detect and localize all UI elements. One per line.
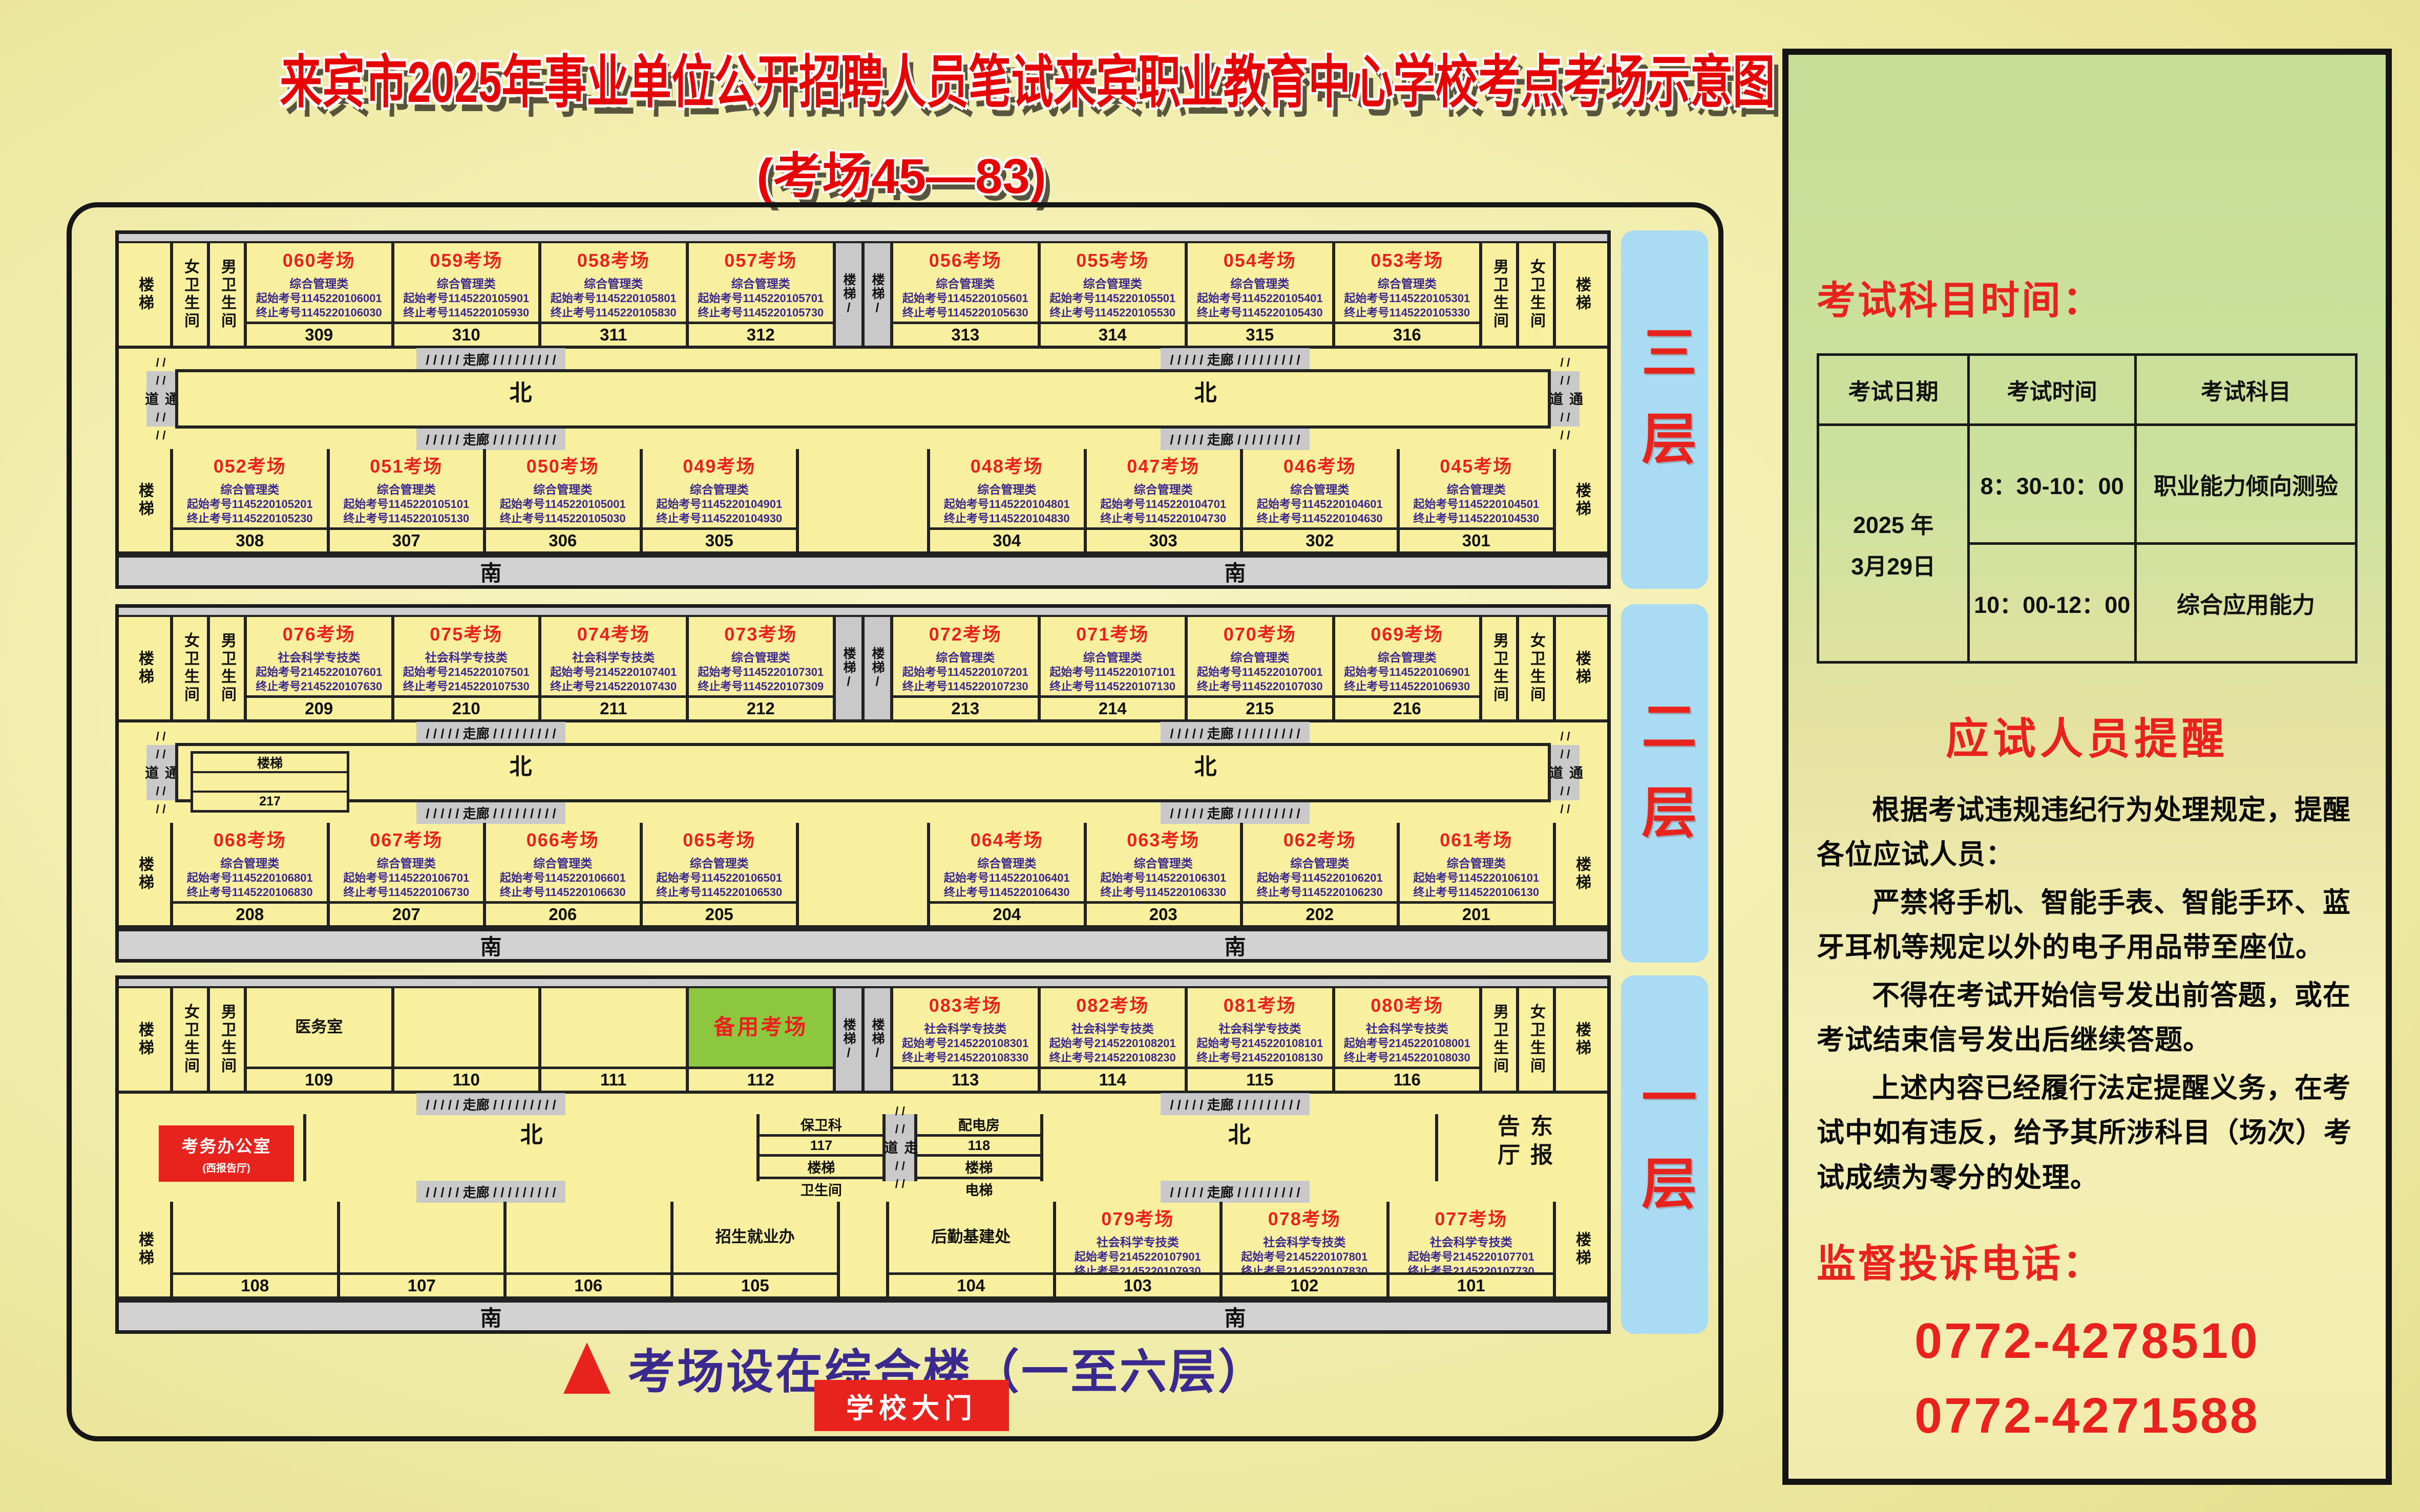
room-number: 307	[330, 530, 483, 551]
room-number: 308	[173, 530, 327, 551]
exam-room-title: 056考场	[893, 246, 1038, 272]
slash-mark: / /	[895, 1104, 905, 1118]
room-number: 115	[1188, 1069, 1332, 1091]
room-109: 医务室109	[247, 988, 394, 1091]
passage-strip: / // /通道/ // /	[146, 745, 175, 800]
exam-start-number: 起始考号1145220106001	[247, 291, 391, 306]
exam-office-room: 考务办公室(西报告厅)	[119, 1114, 306, 1181]
exam-venue-poster: 来宾市2025年事业单位公开招聘人员笔试来宾职业教育中心学校考点考场示意图 (考…	[0, 0, 2420, 1512]
room-number: 310	[394, 324, 539, 346]
stairwell: 楼梯	[119, 617, 173, 719]
floor-plan: 楼梯女卫生间男卫生间060考场综合管理类起始考号1145220106001终止考…	[115, 230, 1611, 589]
stairwell: 楼梯	[1556, 988, 1607, 1091]
notice-paragraph-1: 根据考试违规违纪行为处理规定，提醒各位应试人员：	[1817, 788, 2358, 878]
empty-room	[840, 1202, 889, 1296]
room-number: 210	[394, 698, 539, 719]
female-restroom-label: 女卫生间	[1525, 1004, 1547, 1075]
empty-room	[799, 449, 930, 551]
exam-end-number: 终止考号1145220104730	[1087, 512, 1240, 526]
slash-mark: / /	[1560, 730, 1570, 743]
room-number: 211	[541, 698, 686, 719]
exam-room-title: 083考场	[893, 991, 1038, 1017]
exam-office-box: 考务办公室(西报告厅)	[159, 1125, 294, 1182]
exam-end-number: 终止考号1145220105530	[1041, 306, 1185, 320]
exam-room-title: 061考场	[1400, 825, 1553, 852]
exam-room-114: 082考场社会科学专技类起始考号2145220108201终止考号2145220…	[1041, 988, 1188, 1091]
exam-room-info: 079考场社会科学专技类起始考号2145220107901终止考号2145220…	[1056, 1202, 1220, 1275]
exam-end-number: 终止考号1145220105330	[1335, 306, 1480, 320]
room-105: 招生就业办105	[674, 1202, 840, 1296]
slash-mark: / /	[156, 730, 165, 743]
exam-room-info: 066考场综合管理类起始考号1145220106601终止考号114522010…	[486, 823, 640, 904]
exam-room-title: 057考场	[689, 246, 833, 272]
exam-room-info: 076考场社会科学专技类起始考号2145220107601终止考号2145220…	[247, 617, 391, 698]
exam-office-title: 考务办公室	[162, 1133, 291, 1157]
exam-end-number: 终止考号1145220107130	[1041, 679, 1185, 694]
exam-category: 社会科学专技类	[541, 648, 686, 665]
room-number: 315	[1188, 324, 1332, 346]
exam-end-number: 终止考号1145220106930	[1335, 679, 1480, 694]
exam-end-number: 终止考号1145220106530	[643, 885, 796, 900]
exam-category: 综合管理类	[893, 274, 1038, 291]
exam-start-number: 起始考号1145220107101	[1041, 665, 1185, 679]
exam-start-number: 起始考号2145220108101	[1188, 1036, 1332, 1051]
exam-start-number: 起始考号1145220107301	[689, 665, 833, 679]
room-number: 314	[1041, 324, 1185, 346]
north-label: 北	[1194, 748, 1217, 781]
exam-room-210: 075考场社会科学专技类起始考号2145220107501终止考号2145220…	[394, 617, 542, 719]
stairwell-strip: 楼梯/	[865, 617, 893, 719]
floor-2-plan: 楼梯女卫生间男卫生间076考场社会科学专技类起始考号2145220107601终…	[115, 604, 1611, 963]
exam-room-313: 056考场综合管理类起始考号1145220105601终止考号114522010…	[893, 243, 1041, 346]
exam-room-info: 069考场综合管理类起始考号1145220106901终止考号114522010…	[1335, 617, 1480, 698]
exam-end-number: 终止考号1145220105430	[1188, 306, 1332, 320]
female-restroom-label: 女卫生间	[179, 632, 201, 704]
exam-category: 综合管理类	[1243, 480, 1397, 497]
central-hall: 北北楼梯217	[175, 743, 1551, 802]
exam-end-number: 终止考号1145220106430	[930, 885, 1084, 900]
male-restroom: 男卫生间	[1482, 988, 1519, 1091]
north-label: 北	[510, 374, 532, 407]
exam-room-302: 046考场综合管理类起始考号1145220104601终止考号114522010…	[1243, 449, 1400, 551]
exam-start-number: 起始考号1145220105501	[1041, 291, 1185, 306]
stairwell-strip: 楼梯/	[836, 988, 865, 1091]
exam-category: 综合管理类	[689, 274, 833, 291]
exam-room-205: 065考场综合管理类起始考号1145220106501终止考号114522010…	[643, 823, 799, 925]
slash-mark: / /	[156, 374, 165, 388]
exam-room-title: 078考场	[1223, 1204, 1386, 1231]
exam-category: 综合管理类	[930, 854, 1084, 871]
exam-room-206: 066考场综合管理类起始考号1145220106601终止考号114522010…	[486, 823, 643, 925]
male-restroom: 男卫生间	[1482, 617, 1519, 719]
building-edge	[119, 608, 1607, 617]
exam-start-number: 起始考号1145220106101	[1400, 871, 1553, 885]
exam-time-2: 10：00-12：00	[1969, 544, 2136, 663]
exam-start-number: 起始考号1145220106401	[930, 871, 1084, 885]
exam-end-number: 终止考号1145220107030	[1188, 679, 1332, 694]
exam-start-number: 起始考号1145220105201	[173, 497, 327, 512]
exam-room-title: 048考场	[930, 452, 1084, 478]
floor-1-label: 一层	[1625, 1069, 1704, 1241]
exam-room-info: 080考场社会科学专技类起始考号2145220108001终止考号2145220…	[1335, 988, 1480, 1069]
stairwell-strip: 楼梯/	[865, 988, 893, 1091]
exam-start-number: 起始考号2145220108201	[1041, 1036, 1185, 1051]
stairwell: 楼梯	[917, 1157, 1040, 1179]
exam-end-number: 终止考号1145220105630	[893, 306, 1038, 320]
building-edge	[119, 979, 1607, 988]
notice-paragraph-4: 上述内容已经履行法定提醒义务，在考试中如有违反，给予其所涉科目（场次）考试成绩为…	[1817, 1066, 2358, 1200]
exam-category: 综合管理类	[1335, 274, 1480, 291]
stairwell-strip: 楼梯/	[836, 617, 865, 719]
exam-category: 综合管理类	[486, 480, 640, 497]
school-gate-badge: 学校大门	[814, 1380, 1009, 1431]
exam-room-title: 081考场	[1188, 991, 1332, 1017]
exam-end-number: 终止考号1145220106130	[1400, 885, 1553, 900]
exam-room-title: 064考场	[930, 825, 1084, 852]
exam-start-number: 起始考号1145220106501	[643, 871, 796, 885]
east-lecture-hall: 东报告厅	[1438, 1114, 1607, 1181]
exam-room-info: 082考场社会科学专技类起始考号2145220108201终止考号2145220…	[1041, 988, 1185, 1069]
exam-date-year: 2025 年	[1820, 506, 1967, 540]
exam-room-info: 060考场综合管理类起始考号1145220106001终止考号114522010…	[247, 243, 391, 324]
exam-room-title: 045考场	[1400, 452, 1553, 478]
wall-spacer	[1580, 369, 1607, 429]
exam-category: 综合管理类	[1400, 854, 1553, 871]
room-number: 201	[1400, 904, 1553, 925]
stairwell-strip: 楼梯/	[865, 243, 893, 346]
exam-room-215: 070考场综合管理类起始考号1145220107001终止考号114522010…	[1188, 617, 1335, 719]
exam-room-info: 072考场综合管理类起始考号1145220107201终止考号114522010…	[893, 617, 1038, 698]
east-lecture-hall-label: 东报告厅	[1490, 1114, 1555, 1181]
room-number: 316	[1335, 324, 1480, 346]
exam-room-214: 071考场综合管理类起始考号1145220107101终止考号114522010…	[1041, 617, 1188, 719]
floor-3-badge: 三层	[1621, 230, 1708, 589]
exam-category: 社会科学专技类	[247, 648, 391, 665]
header-exam-date: 考试日期	[1818, 355, 1969, 425]
schedule-row-1: 2025 年 3月29日 8：30-10：00 职业能力倾向测验	[1818, 425, 2356, 544]
walkway-strip-label: 走道	[880, 1140, 920, 1155]
female-restroom-label: 女卫生间	[179, 1004, 201, 1075]
exam-room-title: 051考场	[330, 452, 483, 478]
exam-category: 综合管理类	[643, 480, 796, 497]
exam-room-title: 060考场	[247, 246, 391, 272]
exam-room-308: 052考场综合管理类起始考号1145220105201终止考号114522010…	[173, 449, 330, 551]
room-number: 313	[893, 324, 1038, 346]
stairwell-label: 楼梯	[1570, 856, 1593, 892]
stairwell: 楼梯	[1556, 449, 1607, 551]
exam-room-title: 055考场	[1041, 246, 1185, 272]
exam-room-title: 065考场	[643, 825, 796, 852]
female-restroom-label: 女卫生间	[179, 259, 201, 330]
exam-end-number: 终止考号1145220107309	[689, 679, 833, 694]
exam-category: 社会科学专技类	[394, 648, 539, 665]
exam-start-number: 起始考号1145220104601	[1243, 497, 1397, 512]
slash-mark: / /	[156, 411, 165, 424]
corridor-label: / / / / / 走廊 / / / / / / / / /	[416, 1093, 565, 1115]
exam-end-number: 终止考号1145220106630	[486, 885, 640, 900]
stairwell: 楼梯	[119, 449, 173, 551]
middle-band: 考务办公室(西报告厅)北保卫科117楼梯卫生间/ // /走道/ // /配电房…	[119, 1114, 1607, 1181]
exam-date-day: 3月29日	[1820, 548, 1967, 581]
exam-category: 综合管理类	[1335, 648, 1480, 665]
exam-category: 综合管理类	[1243, 854, 1397, 871]
exam-room-301: 045考场综合管理类起始考号1145220104501终止考号114522010…	[1400, 449, 1556, 551]
exam-start-number: 起始考号1145220106801	[173, 871, 327, 885]
exam-end-number: 终止考号1145220106830	[173, 885, 327, 900]
exam-category: 综合管理类	[893, 648, 1038, 665]
female-restroom: 女卫生间	[173, 617, 210, 719]
exam-room-info: 054考场综合管理类起始考号1145220105401终止考号114522010…	[1188, 243, 1332, 324]
exam-room-info: 070考场综合管理类起始考号1145220107001终止考号114522010…	[1188, 617, 1332, 698]
exam-room-info: 047考场综合管理类起始考号1145220104701终止考号114522010…	[1087, 449, 1240, 530]
exam-room-title: 047考场	[1087, 452, 1240, 478]
slash-mark: / /	[1560, 784, 1570, 798]
room-number: 107	[340, 1275, 504, 1296]
exam-room-title: 062考场	[1243, 825, 1397, 852]
exam-room-216: 069考场综合管理类起始考号1145220106901终止考号114522010…	[1335, 617, 1483, 719]
room-number: 109	[247, 1069, 391, 1091]
exam-room-info: 083考场社会科学专技类起始考号2145220108301终止考号2145220…	[893, 988, 1038, 1069]
exam-start-number: 起始考号2145220107701	[1390, 1250, 1553, 1264]
notice-paragraph-3: 不得在考试开始信号发出前答题，或在考试结束信号发出后继续答题。	[1817, 973, 2358, 1063]
schedule-heading: 考试科目时间：	[1817, 269, 2358, 325]
exam-room-title: 068考场	[173, 825, 327, 852]
exam-end-number: 终止考号2145220108230	[1041, 1051, 1185, 1065]
exam-start-number: 起始考号2145220107801	[1223, 1250, 1386, 1264]
exam-room-314: 055考场综合管理类起始考号1145220105501终止考号114522010…	[1041, 243, 1188, 346]
middle-band: / // /通道/ // /北北楼梯217/ // /通道/ // /	[119, 743, 1607, 802]
exam-room-title: 049考场	[643, 452, 796, 478]
floor-2-section: 楼梯女卫生间男卫生间076考场社会科学专技类起始考号2145220107601终…	[115, 604, 1708, 963]
room-number: 312	[689, 324, 833, 346]
exam-start-number: 起始考号1145220106301	[1087, 871, 1240, 885]
exam-room-304: 048考场综合管理类起始考号1145220104801终止考号114522010…	[930, 449, 1087, 551]
room-111: 111	[541, 988, 689, 1091]
stairwell: 楼梯	[1556, 823, 1607, 925]
exam-room-title: 073考场	[689, 620, 833, 646]
campus-map-frame: 楼梯女卫生间男卫生间060考场综合管理类起始考号1145220106001终止考…	[67, 202, 1723, 1441]
exam-category: 社会科学专技类	[1335, 1019, 1480, 1036]
floor-2-label: 二层	[1625, 697, 1704, 869]
exam-category: 综合管理类	[541, 274, 686, 291]
male-restroom: 男卫生间	[1482, 243, 1519, 346]
exam-end-number: 终止考号1145220105830	[541, 306, 686, 320]
female-restroom: 女卫生间	[1519, 243, 1556, 346]
exam-room-title: 069考场	[1335, 620, 1480, 646]
corridor-label: / / / / / 走廊 / / / / / / / / /	[1161, 348, 1309, 370]
hotline-heading: 监督投诉电话：	[1817, 1232, 2358, 1288]
exam-room-info: 065考场综合管理类起始考号1145220106501终止考号114522010…	[643, 823, 796, 904]
exam-end-number: 终止考号1145220105230	[173, 512, 327, 526]
room-number: 304	[930, 530, 1084, 551]
room-title: 医务室	[247, 988, 391, 1069]
exam-room-title: 054考场	[1188, 246, 1332, 272]
exam-end-number: 终止考号2145220107830	[1223, 1264, 1386, 1275]
south-label: 南	[1224, 1301, 1246, 1332]
poster-title: 来宾市2025年事业单位公开招聘人员笔试来宾职业教育中心学校考点考场示意图	[280, 36, 1523, 119]
slash-mark: / /	[156, 784, 165, 798]
exam-end-number: 终止考号1145220106230	[1243, 885, 1397, 900]
corridor-label: / / / / / 走廊 / / / / / / / / /	[1161, 722, 1309, 744]
floor-2-badge: 二层	[1621, 604, 1708, 963]
exam-room-209: 076考场社会科学专技类起始考号2145220107601终止考号2145220…	[247, 617, 394, 719]
slash-mark: / /	[156, 356, 165, 370]
room-number: 202	[1243, 904, 1397, 925]
exam-category: 综合管理类	[1041, 274, 1185, 291]
exam-room-title: 050考场	[486, 452, 640, 478]
south-label: 南	[1224, 930, 1246, 961]
stair-box-empty	[193, 773, 347, 793]
room-110: 110	[394, 988, 542, 1091]
triangle-marker-icon	[563, 1343, 611, 1394]
exam-room-113: 083考场社会科学专技类起始考号2145220108301终止考号2145220…	[893, 988, 1041, 1091]
female-restroom: 女卫生间	[173, 243, 210, 346]
exam-room-title: 072考场	[893, 620, 1038, 646]
slash-mark: / /	[1560, 748, 1570, 761]
exam-room-title: 082考场	[1041, 991, 1185, 1017]
room-title	[541, 988, 686, 1069]
exam-room-212: 073考场综合管理类起始考号1145220107301终止考号114522010…	[689, 617, 836, 719]
exam-category: 综合管理类	[247, 274, 391, 291]
room-title	[507, 1202, 670, 1275]
exam-end-number: 终止考号1145220105730	[689, 306, 833, 320]
corridor-label: / / / / / 走廊 / / / / / / / / /	[1161, 1093, 1309, 1115]
stairwell-label: 楼梯	[133, 482, 156, 518]
exam-room-102: 078考场社会科学专技类起始考号2145220107801终止考号2145220…	[1223, 1202, 1390, 1296]
exam-room-info: 056考场综合管理类起始考号1145220105601终止考号114522010…	[893, 243, 1038, 324]
exam-room-306: 050考场综合管理类起始考号1145220105001终止考号114522010…	[486, 449, 643, 551]
exam-room-info: 046考场综合管理类起始考号1145220104601终止考号114522010…	[1243, 449, 1397, 530]
notice-paragraphs: 根据考试违规违纪行为处理规定，提醒各位应试人员： 严禁将手机、智能手表、智能手环…	[1817, 788, 2358, 1200]
exam-end-number: 终止考号1145220106030	[247, 306, 391, 320]
exam-room-203: 063考场综合管理类起始考号1145220106301终止考号114522010…	[1087, 823, 1244, 925]
exam-start-number: 起始考号1145220105001	[486, 497, 640, 512]
exam-room-311: 058考场综合管理类起始考号1145220105801终止考号114522010…	[541, 243, 689, 346]
exam-start-number: 起始考号1145220105701	[689, 291, 833, 306]
female-restroom-label: 女卫生间	[1525, 632, 1547, 704]
stairwell-label: 楼梯	[1570, 276, 1593, 312]
exam-room-title: 067考场	[330, 825, 483, 852]
exam-start-number: 起始考号1145220105601	[893, 291, 1038, 306]
room-number: 309	[247, 324, 391, 346]
exam-start-number: 起始考号1145220106701	[330, 871, 483, 885]
stairwell: 楼梯	[1556, 1202, 1607, 1296]
room-number: 216	[1335, 698, 1480, 719]
exam-category: 综合管理类	[1087, 854, 1240, 871]
exam-start-number: 起始考号1145220106901	[1335, 665, 1480, 679]
room-title: 招生就业办	[674, 1202, 837, 1275]
room-number: 118	[917, 1137, 1040, 1157]
exam-room-info: 074考场社会科学专技类起始考号2145220107401终止考号2145220…	[541, 617, 686, 698]
room-104: 后勤基建处104	[889, 1202, 1056, 1296]
exam-room-info: 055考场综合管理类起始考号1145220105501终止考号114522010…	[1041, 243, 1185, 324]
female-restroom: 女卫生间	[173, 988, 210, 1091]
corridor-label: / / / / / 走廊 / / / / / / / / /	[1161, 802, 1309, 824]
south-label: 南	[480, 1301, 501, 1332]
slash-mark: / /	[156, 748, 165, 761]
exam-room-115: 081考场社会科学专技类起始考号2145220108101终止考号2145220…	[1188, 988, 1335, 1091]
male-restroom: 男卫生间	[210, 617, 247, 719]
exam-room-title: 058考场	[541, 246, 686, 272]
north-label: 北	[510, 748, 532, 781]
room-number: 112	[689, 1069, 833, 1091]
exam-category: 综合管理类	[394, 274, 539, 291]
exam-room-info: 052考场综合管理类起始考号1145220105201终止考号114522010…	[173, 449, 327, 530]
exam-room-info: 050考场综合管理类起始考号1145220105001终止考号114522010…	[486, 449, 640, 530]
exam-room-316: 053考场综合管理类起始考号1145220105301终止考号114522010…	[1335, 243, 1483, 346]
exam-end-number: 终止考号1145220104830	[930, 512, 1084, 526]
hotline-numbers: 0772-4278510 0772-4271588	[1817, 1304, 2358, 1453]
stairwell: 楼梯	[119, 243, 173, 346]
stairwell: 楼梯	[760, 1157, 882, 1179]
notice-heading: 应试人员提醒	[1817, 705, 2358, 766]
central-hall: 北北	[175, 369, 1551, 429]
room-number: 206	[486, 904, 640, 925]
stairwell-label: 楼梯	[133, 856, 156, 892]
wall-spacer	[1580, 743, 1607, 802]
floor-3-label: 三层	[1625, 324, 1704, 496]
room-number: 104	[889, 1275, 1053, 1296]
passage-strip: / // /通道/ // /	[1551, 371, 1580, 427]
exam-category: 综合管理类	[1087, 480, 1240, 497]
floor-plan: 楼梯女卫生间男卫生间076考场社会科学专技类起始考号2145220107601终…	[115, 604, 1611, 963]
exam-end-number: 终止考号2145220107730	[1390, 1264, 1553, 1275]
info-sidebar: 考试科目时间： 考试日期 考试时间 考试科目 2025 年 3月29日 8：30…	[1782, 49, 2392, 1485]
female-restroom: 女卫生间	[1519, 617, 1556, 719]
floor-1-badge: 一层	[1621, 975, 1708, 1334]
room-number: 204	[930, 904, 1084, 925]
exam-category: 综合管理类	[330, 480, 483, 497]
exam-room-title: 075考场	[394, 620, 539, 646]
exam-room-title: 053考场	[1335, 246, 1480, 272]
slash-mark: / /	[1560, 356, 1570, 370]
west-hall-label: (西报告厅)	[162, 1160, 291, 1175]
room-title	[394, 988, 539, 1069]
exam-category: 综合管理类	[930, 480, 1084, 497]
room-number: 203	[1087, 904, 1240, 925]
room-108: 108	[173, 1202, 340, 1296]
corridor-label: / / / / / 走廊 / / / / / / / / /	[416, 802, 565, 824]
exam-start-number: 起始考号1145220107201	[893, 665, 1038, 679]
male-restroom-label: 男卫生间	[216, 259, 238, 330]
room-number: 302	[1243, 530, 1397, 551]
exam-category: 综合管理类	[643, 854, 796, 871]
exam-room-title: 077考场	[1390, 1204, 1553, 1231]
hotline-number-1: 0772-4278510	[1817, 1304, 2358, 1378]
hall-room-east: 北	[1043, 1114, 1438, 1181]
exam-start-number: 起始考号1145220105401	[1188, 291, 1332, 306]
stairwell: 楼梯	[1556, 243, 1607, 346]
exam-time-1: 8：30-10：00	[1969, 425, 2136, 544]
room-number: 305	[643, 530, 796, 551]
exam-category: 综合管理类	[173, 854, 327, 871]
room-112: 备用考场112	[689, 988, 836, 1091]
exam-end-number: 终止考号2145220107630	[247, 679, 391, 694]
exam-start-number: 起始考号1145220104501	[1400, 497, 1553, 512]
exam-end-number: 终止考号2145220107430	[541, 679, 686, 694]
stairwell-label: 楼梯	[133, 1231, 156, 1267]
hotline-number-2: 0772-4271588	[1817, 1378, 2358, 1453]
exam-end-number: 终止考号2145220107530	[394, 679, 539, 694]
exam-start-number: 起始考号2145220108001	[1335, 1036, 1480, 1051]
exam-room-info: 081考场社会科学专技类起始考号2145220108101终止考号2145220…	[1188, 988, 1332, 1069]
room-title: 后勤基建处	[889, 1202, 1053, 1275]
room-title	[340, 1202, 504, 1275]
exam-room-title: 076考场	[247, 620, 391, 646]
south-band: 南南	[119, 928, 1607, 959]
exam-category: 综合管理类	[330, 854, 483, 871]
floor-plan: 楼梯女卫生间男卫生间医务室109110111备用考场112楼梯/楼梯/083考场…	[115, 975, 1611, 1334]
